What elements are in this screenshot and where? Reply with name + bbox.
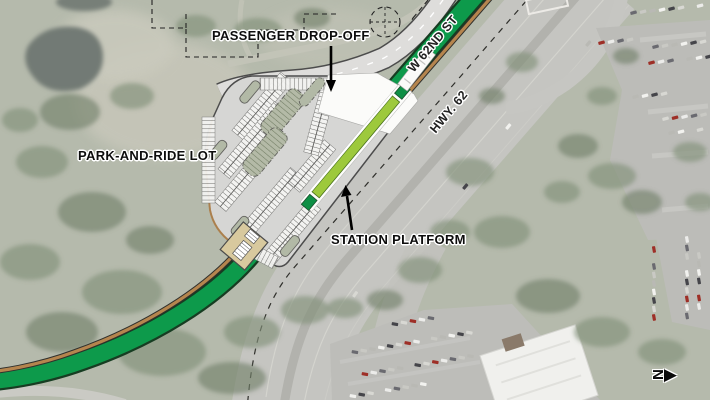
site-plan-graphics [0,0,710,400]
north-letter: N [649,369,666,380]
label-passenger-dropoff: PASSENGER DROP-OFF [212,29,370,42]
site-plan-map: PASSENGER DROP-OFF PARK-AND-RIDE LOT STA… [0,0,710,400]
label-station-platform: STATION PLATFORM [331,233,466,246]
north-arrow: N ▶ [652,366,677,383]
label-park-and-ride-lot: PARK-AND-RIDE LOT [78,149,216,162]
